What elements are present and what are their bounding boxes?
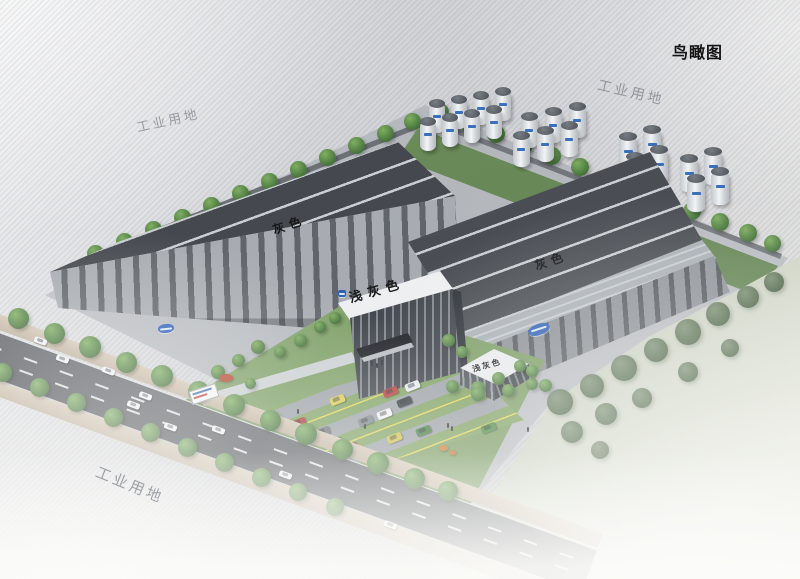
land-use-watermarks: 工业用地工业用地工业用地 xyxy=(0,0,800,579)
watermark-text: 工业用地 xyxy=(596,75,667,110)
watermark-text: 工业用地 xyxy=(93,461,168,507)
page-title: 鸟瞰图 xyxy=(672,39,723,63)
watermark-text: 工业用地 xyxy=(135,103,202,136)
aerial-rendering: 灰色 灰色 浅灰色 浅灰色 工业用地工业用地工业用地 鸟瞰图 xyxy=(0,0,800,579)
